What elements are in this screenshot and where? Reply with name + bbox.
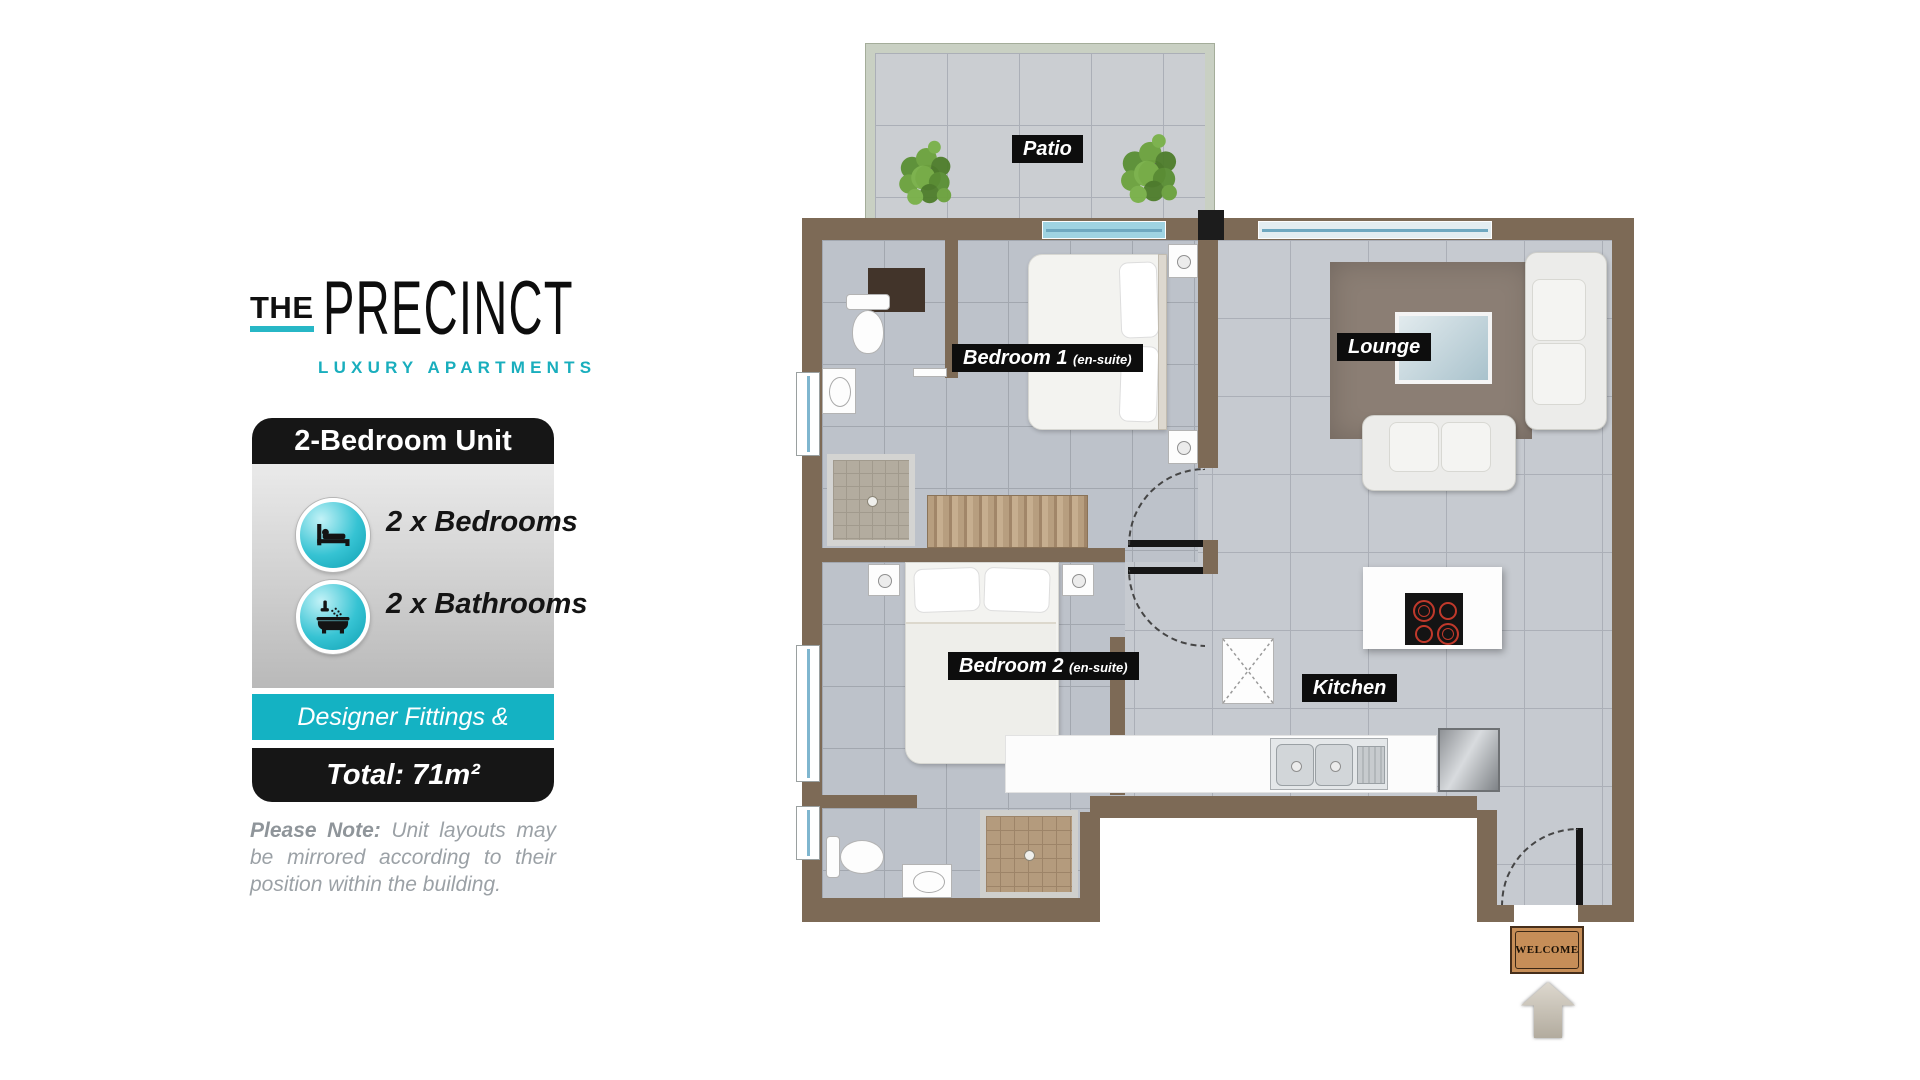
basin-bowl: [829, 377, 851, 407]
patio-label: Patio: [1012, 135, 1083, 163]
lounge-label: Lounge: [1337, 333, 1431, 361]
wall-jog: [1080, 812, 1100, 898]
sofa-cushion: [1532, 279, 1586, 341]
patio-slider-door: [1042, 221, 1166, 239]
window-pane: [807, 649, 810, 778]
wall-bottom-right-a: [1497, 905, 1514, 922]
unit-card-body: 2 x Bedrooms 2 x Bathrooms: [252, 464, 554, 688]
sink-basin: [1276, 744, 1314, 786]
floorplan-unit: Bedroom 1 (en-suite) Bedroom 2 (en-suite…: [802, 218, 1634, 922]
wall-right: [1612, 218, 1634, 922]
fridge: [1438, 728, 1500, 792]
wall-bathroom2: [822, 795, 917, 808]
nightstand: [1062, 564, 1094, 596]
column-marker: [1198, 210, 1224, 240]
entrance-arrow-icon: [1521, 982, 1575, 1038]
lamp-icon: [878, 574, 892, 588]
dresser: [927, 495, 1088, 548]
disclaimer-note: Please Note: Unit layouts may be mirrore…: [250, 818, 556, 899]
bedroom2-window: [796, 645, 820, 782]
designer-banner: Designer Fittings & Finishes: [252, 694, 554, 740]
lamp-icon: [1072, 574, 1086, 588]
sofa-vertical: [1525, 252, 1607, 430]
kitchen-sink: [1270, 738, 1388, 790]
burner: [1415, 625, 1433, 643]
feature-bedrooms-label: 2 x Bedrooms: [386, 506, 578, 539]
bedroom2-label: Bedroom 2 (en-suite): [948, 652, 1139, 680]
sink-drainer: [1357, 746, 1385, 784]
patio-area: Patio: [866, 44, 1214, 218]
appliance-cabinet: [1222, 638, 1274, 704]
drain-icon: [1330, 761, 1341, 772]
total-area-bar: Total: 71m²: [252, 748, 554, 802]
bed1-pillow: [1119, 261, 1160, 338]
burner: [1437, 623, 1459, 645]
nightstand: [1168, 430, 1198, 464]
lounge-window: [1258, 221, 1492, 239]
brand-name-text: PRECINCT: [323, 276, 574, 343]
wall-bottom-left: [802, 898, 1100, 922]
bed1-headboard: [1158, 254, 1167, 430]
toilet-icon: [846, 294, 890, 310]
bedroom1-label: Bedroom 1 (en-suite): [952, 344, 1143, 372]
burner: [1413, 600, 1435, 622]
window-pane: [1262, 229, 1488, 232]
brand-logo: THE PRECINCT: [250, 276, 727, 343]
sink-basin: [1315, 744, 1353, 786]
feature-bathrooms-label: 2 x Bathrooms: [386, 588, 587, 621]
lamp-icon: [1177, 441, 1191, 455]
wall-kitchen-bottom: [1090, 796, 1477, 818]
bath-icon: [296, 580, 370, 654]
basin-icon: [822, 368, 856, 414]
slider-pane: [1046, 229, 1162, 232]
toilet-bowl: [840, 840, 884, 874]
plant-icon: [886, 136, 970, 216]
exterior-mask: [1100, 818, 1477, 922]
bed-icon-glyph: [311, 513, 355, 557]
sofa-cushion: [1389, 422, 1439, 472]
flyer-canvas: THE PRECINCT LUXURY APARTMENTS 2-Bedroom…: [0, 0, 1920, 1080]
wall-bedroom-divider: [822, 548, 1125, 562]
kitchen-island: [1363, 567, 1502, 649]
sofa-horizontal: [1362, 415, 1516, 491]
shower2: [980, 810, 1078, 898]
bathroom2-window: [796, 806, 820, 860]
bath-icon-glyph: [311, 595, 355, 639]
toilet-icon: [826, 836, 840, 878]
nightstand: [868, 564, 900, 596]
unit-card-title: 2-Bedroom Unit: [252, 418, 554, 464]
shower2-drain: [1024, 850, 1035, 861]
welcome-mat: WELCOME: [1510, 926, 1584, 974]
brand-the-text: THE: [250, 292, 314, 323]
bed2-pillow: [983, 567, 1050, 613]
brand-underline: [250, 326, 314, 332]
basin-bowl: [913, 871, 945, 893]
plant-icon: [1106, 129, 1198, 215]
kitchen-label: Kitchen: [1302, 674, 1397, 702]
cabinet-x-icon: [1223, 639, 1273, 703]
drain-icon: [1291, 761, 1302, 772]
shower1-drain: [867, 496, 878, 507]
lamp-icon: [1177, 255, 1191, 269]
brand-the-block: THE: [250, 292, 314, 332]
brand-tagline: LUXURY APARTMENTS: [318, 358, 596, 378]
welcome-mat-inner-border: [1515, 931, 1579, 969]
window-pane: [807, 810, 810, 856]
toilet-bowl: [852, 310, 884, 354]
shower1: [827, 454, 915, 546]
wall-bedroom1-right: [1198, 240, 1218, 468]
wall-corridor-left: [1477, 810, 1497, 922]
burner: [1439, 602, 1457, 620]
wall-bottom-right-b: [1578, 905, 1634, 922]
wall-door-post: [1203, 540, 1218, 574]
sofa-cushion: [1441, 422, 1491, 472]
ensuite1-window: [796, 372, 820, 456]
window-pane: [807, 376, 810, 452]
cooktop: [1405, 593, 1463, 645]
disclaimer-lead: Please Note:: [250, 819, 381, 842]
unit-info-card: 2-Bedroom Unit 2 x Bedrooms: [252, 418, 554, 802]
arrow-shape: [1521, 982, 1575, 1038]
ensuite1-door: [913, 368, 947, 377]
nightstand: [1168, 244, 1198, 278]
bed-icon: [296, 498, 370, 572]
bed2-pillow: [913, 567, 980, 613]
sofa-cushion: [1532, 343, 1586, 405]
basin-icon: [902, 864, 952, 898]
